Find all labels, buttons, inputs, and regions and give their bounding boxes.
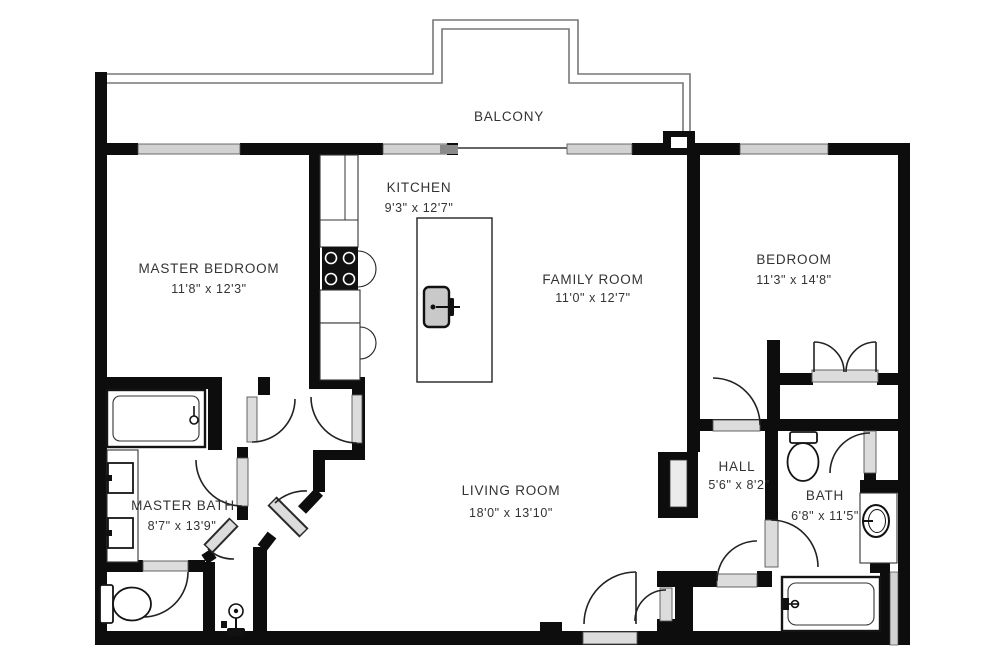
room-label-kitchen: KITCHEN 9'3" x 12'7" xyxy=(385,180,454,215)
balcony-label: BALCONY xyxy=(474,109,544,124)
toilet-icon xyxy=(788,432,819,481)
door-entry xyxy=(583,572,637,644)
exterior-walls xyxy=(95,72,910,645)
balcony-railing xyxy=(107,20,690,131)
svg-text:BEDROOM: BEDROOM xyxy=(756,252,831,267)
sink-icon xyxy=(105,518,133,548)
stove-icon xyxy=(322,247,376,290)
svg-text:BATH: BATH xyxy=(806,488,844,503)
bathtub-icon xyxy=(107,390,205,447)
door-hall-entry xyxy=(717,541,757,587)
svg-text:KITCHEN: KITCHEN xyxy=(387,180,452,195)
svg-text:FAMILY ROOM: FAMILY ROOM xyxy=(542,272,643,287)
door-entry-closet xyxy=(635,588,672,621)
toilet-icon xyxy=(100,585,151,623)
door-bedroom-closet-double xyxy=(812,342,878,382)
svg-text:11'8" x 12'3": 11'8" x 12'3" xyxy=(171,282,246,296)
room-label-hall: HALL 5'6" x 8'2" xyxy=(708,459,769,492)
svg-text:HALL: HALL xyxy=(719,459,756,474)
svg-text:18'0" x 13'10": 18'0" x 13'10" xyxy=(469,506,553,520)
door-bath xyxy=(765,520,818,567)
svg-text:11'0" x 12'7": 11'0" x 12'7" xyxy=(555,291,630,305)
kitchen-counter-upper xyxy=(320,155,358,247)
door-bedroom xyxy=(713,378,760,431)
kitchen-island xyxy=(417,218,492,382)
master-bath-fixtures xyxy=(100,390,245,636)
svg-text:LIVING ROOM: LIVING ROOM xyxy=(462,483,561,498)
room-label-family-room: FAMILY ROOM 11'0" x 12'7" xyxy=(542,272,643,305)
hall-niche xyxy=(670,460,687,507)
svg-text:9'3" x 12'7": 9'3" x 12'7" xyxy=(385,201,454,215)
window-master-bedroom-top xyxy=(138,144,240,154)
door-vestibule-living xyxy=(272,491,307,533)
svg-text:6'8" x 11'5": 6'8" x 11'5" xyxy=(791,509,859,523)
balcony-door-track-cap xyxy=(440,145,458,154)
window-bedroom-top xyxy=(740,144,828,154)
interior-walls xyxy=(95,155,910,645)
refrigerator-icon xyxy=(320,323,360,380)
svg-text:MASTER BATH: MASTER BATH xyxy=(131,498,235,513)
window-family-room-top xyxy=(567,144,632,154)
bathtub-icon xyxy=(782,577,880,631)
room-label-master-bedroom: MASTER BEDROOM 11'8" x 12'3" xyxy=(139,261,280,296)
door-master-closet xyxy=(247,397,295,442)
door-bath-inner xyxy=(830,431,876,473)
kitchen-counter-lower xyxy=(320,290,360,323)
room-label-bath: BATH 6'8" x 11'5" xyxy=(791,488,859,523)
room-label-master-bath: MASTER BATH 8'7" x 13'9" xyxy=(131,498,235,533)
svg-text:5'6" x 8'2": 5'6" x 8'2" xyxy=(708,478,769,492)
bath-side-panel xyxy=(890,572,898,645)
svg-text:11'3" x 14'8": 11'3" x 14'8" xyxy=(756,273,831,287)
svg-text:8'7" x 13'9": 8'7" x 13'9" xyxy=(148,519,217,533)
round-sink-icon xyxy=(862,505,889,537)
window-kitchen-top xyxy=(383,144,447,154)
svg-text:MASTER BEDROOM: MASTER BEDROOM xyxy=(139,261,280,276)
room-label-living-room: LIVING ROOM 18'0" x 13'10" xyxy=(462,483,561,520)
floor-plan: BALCONY MASTER BEDROOM 11'8" x 12'3" KIT… xyxy=(0,0,1000,668)
room-label-bedroom: BEDROOM 11'3" x 14'8" xyxy=(756,252,831,287)
sink-icon xyxy=(105,463,133,493)
bath-fixtures xyxy=(782,432,897,631)
door-master-vestibule xyxy=(311,395,362,443)
